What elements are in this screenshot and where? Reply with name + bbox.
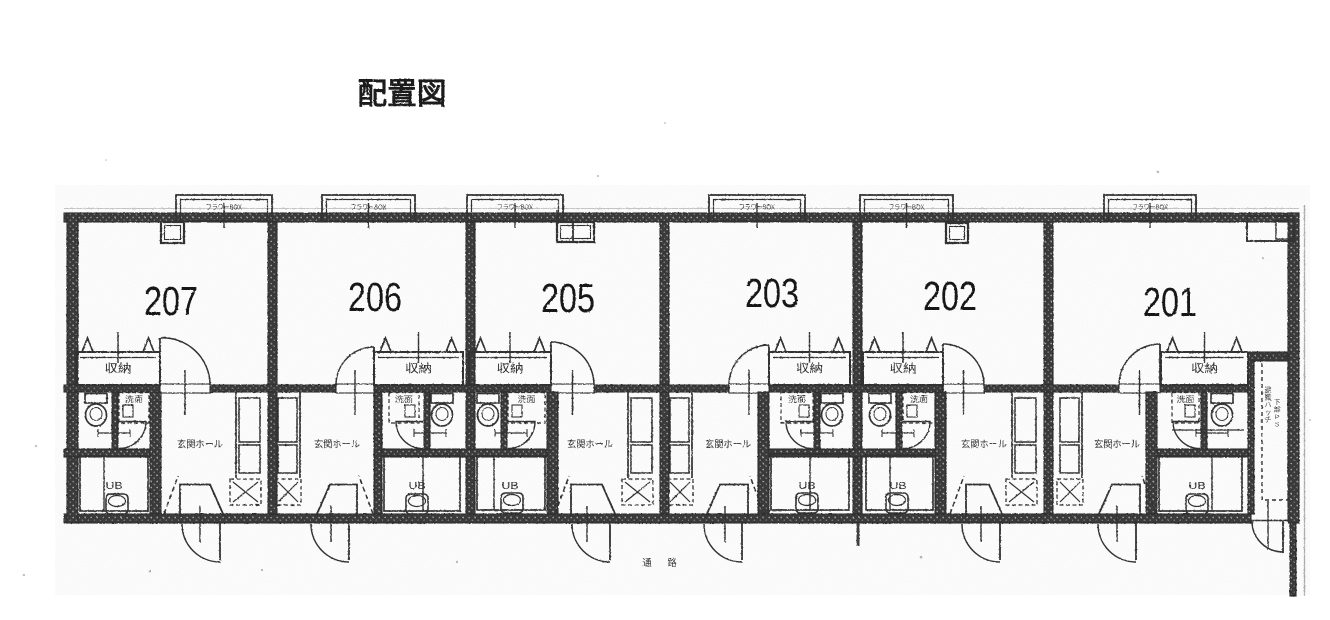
svg-text:配置図: 配置図: [358, 78, 447, 111]
